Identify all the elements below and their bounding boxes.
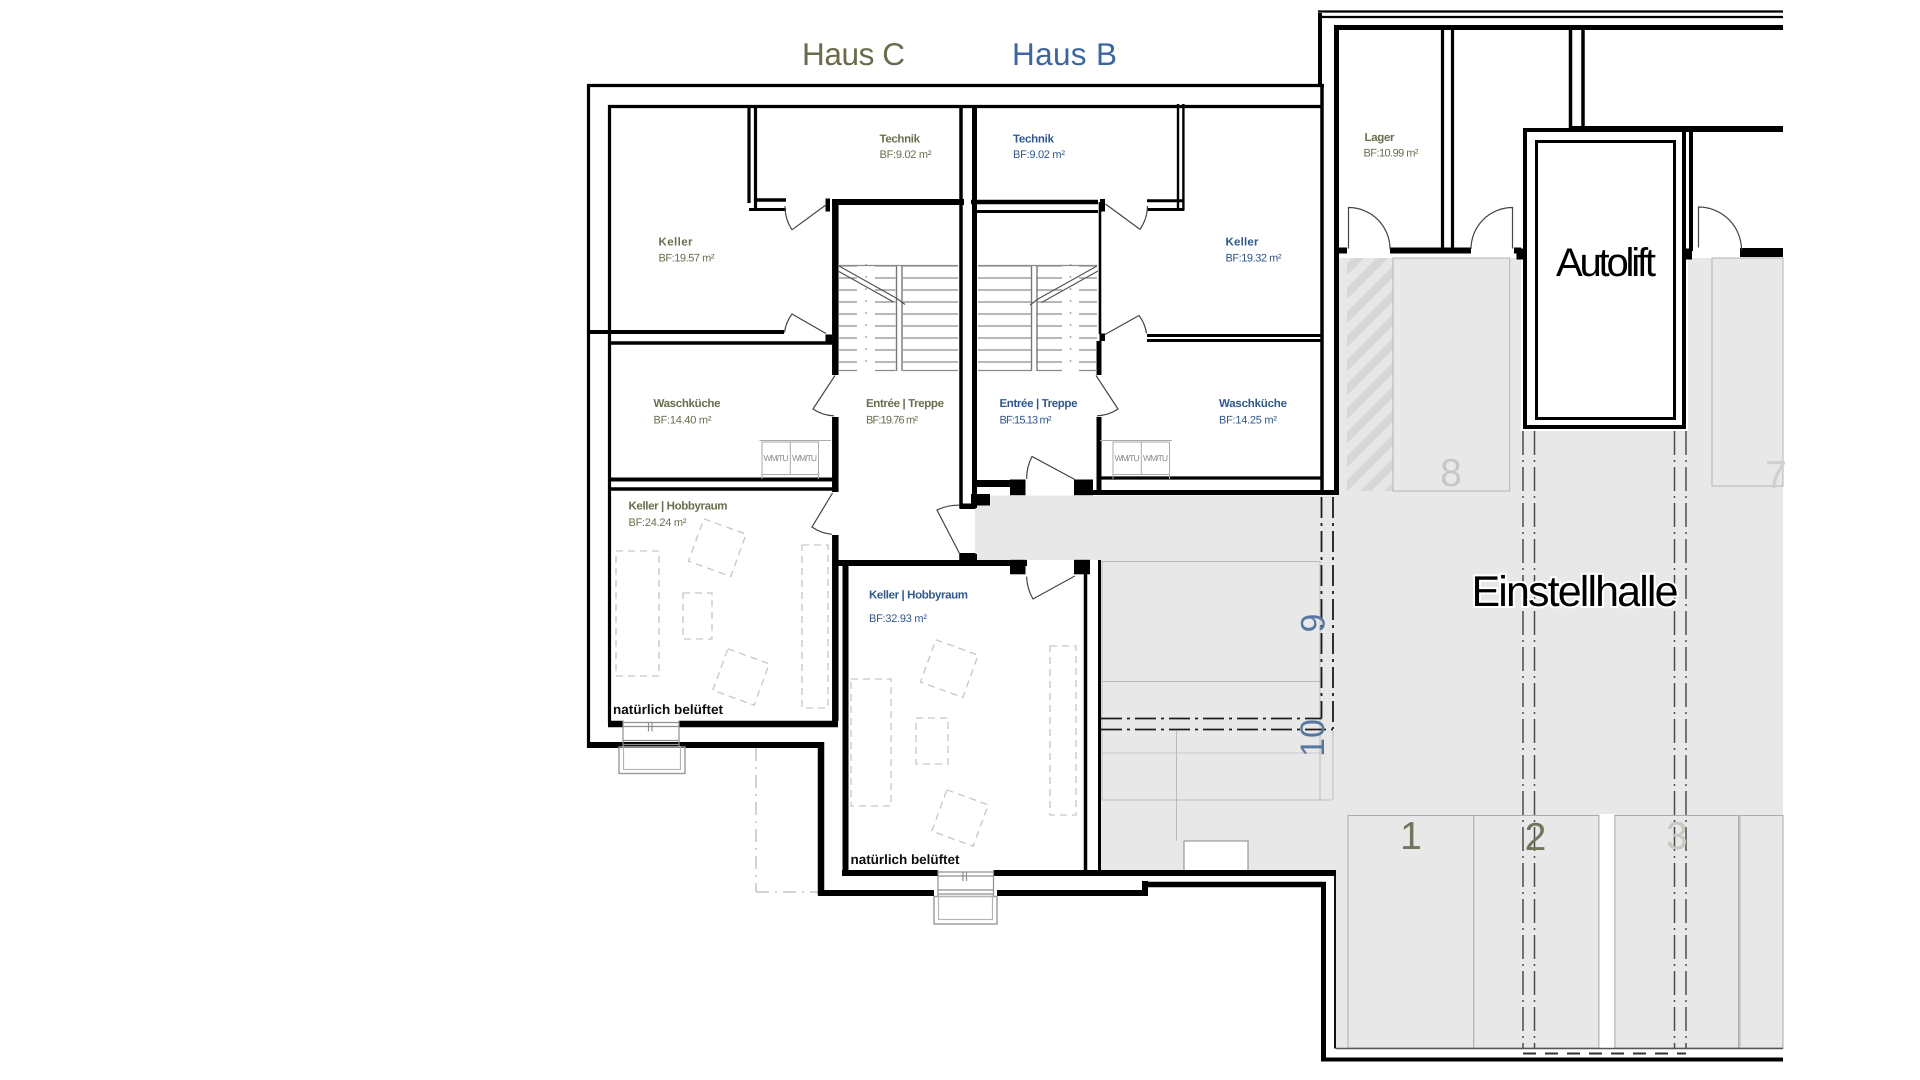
svg-text:Waschküche: Waschküche bbox=[1219, 398, 1287, 410]
svg-text:natürlich belüftet: natürlich belüftet bbox=[851, 852, 961, 867]
svg-text:7: 7 bbox=[1765, 454, 1787, 497]
svg-text:BF:24.24 m²: BF:24.24 m² bbox=[629, 517, 687, 529]
svg-text:BF:9.02 m²: BF:9.02 m² bbox=[1013, 149, 1065, 161]
svg-text:Autolift: Autolift bbox=[1556, 241, 1656, 285]
svg-text:WM/TU: WM/TU bbox=[764, 453, 789, 463]
svg-text:BF:19.76 m²: BF:19.76 m² bbox=[866, 415, 918, 427]
svg-text:BF:9.02 m²: BF:9.02 m² bbox=[880, 149, 932, 161]
svg-text:WM/TU: WM/TU bbox=[1143, 453, 1168, 463]
svg-text:Keller: Keller bbox=[659, 237, 694, 249]
svg-text:Einstellhalle: Einstellhalle bbox=[1472, 568, 1679, 616]
svg-text:Keller: Keller bbox=[1226, 237, 1260, 249]
svg-text:Lager: Lager bbox=[1365, 132, 1396, 144]
svg-text:BF:19.32 m²: BF:19.32 m² bbox=[1226, 253, 1282, 265]
svg-text:Keller | Hobbyraum: Keller | Hobbyraum bbox=[629, 501, 728, 513]
svg-text:Haus B: Haus B bbox=[1012, 36, 1117, 72]
svg-text:Waschküche: Waschküche bbox=[654, 398, 721, 410]
svg-text:1: 1 bbox=[1400, 815, 1422, 858]
svg-text:Technik: Technik bbox=[1013, 134, 1055, 146]
svg-text:Entrée | Treppe: Entrée | Treppe bbox=[866, 398, 944, 410]
svg-text:Keller | Hobbyraum: Keller | Hobbyraum bbox=[869, 590, 968, 602]
svg-text:WM/TU: WM/TU bbox=[792, 453, 817, 463]
svg-text:natürlich belüftet: natürlich belüftet bbox=[613, 702, 724, 717]
svg-text:BF:14.25 m²: BF:14.25 m² bbox=[1219, 415, 1277, 427]
svg-text:3: 3 bbox=[1666, 815, 1688, 858]
svg-text:2: 2 bbox=[1525, 816, 1547, 859]
svg-text:9: 9 bbox=[1295, 614, 1333, 633]
svg-text:10: 10 bbox=[1294, 719, 1332, 757]
svg-text:Technik: Technik bbox=[880, 134, 921, 146]
svg-text:BF:15.13 m²: BF:15.13 m² bbox=[1000, 415, 1052, 427]
svg-text:BF:19.57 m²: BF:19.57 m² bbox=[659, 253, 715, 265]
svg-text:BF:10.99 m²: BF:10.99 m² bbox=[1364, 148, 1419, 160]
svg-text:BF:14.40 m²: BF:14.40 m² bbox=[654, 415, 712, 427]
svg-text:WM/TU: WM/TU bbox=[1115, 453, 1140, 463]
svg-text:BF:32.93 m²: BF:32.93 m² bbox=[869, 613, 927, 625]
svg-text:Haus C: Haus C bbox=[802, 36, 905, 72]
svg-text:Entrée | Treppe: Entrée | Treppe bbox=[1000, 398, 1078, 410]
svg-text:8: 8 bbox=[1440, 452, 1462, 495]
